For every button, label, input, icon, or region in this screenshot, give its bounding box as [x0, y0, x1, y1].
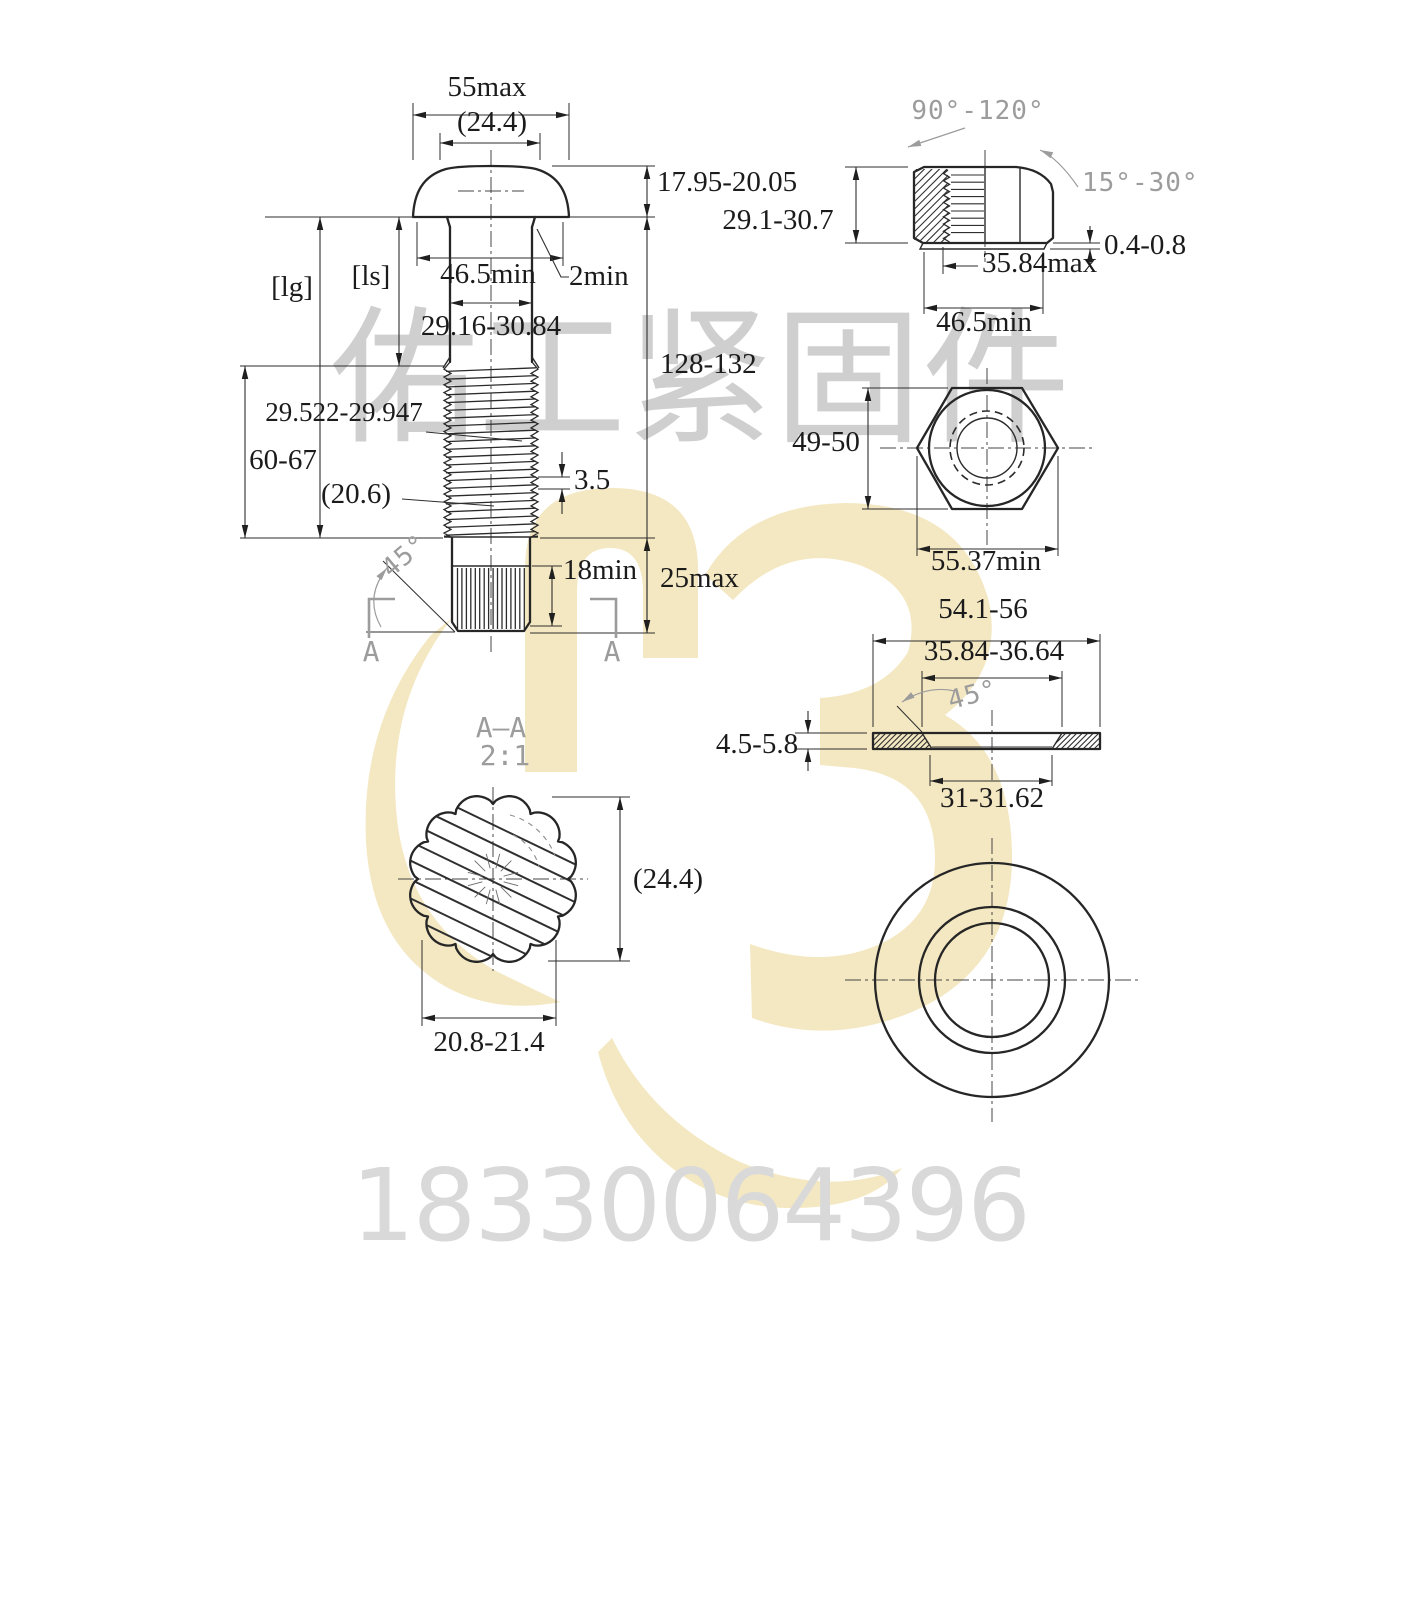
- dim-pitch-dia: 29.522-29.947: [265, 397, 423, 427]
- dim-point-length: 25max: [660, 562, 739, 594]
- logo-arch-shape: [525, 488, 698, 772]
- dim-55max: 55max: [448, 71, 527, 103]
- drawing-sheet: 佑工紧固件 18330064396: [0, 0, 1416, 1600]
- leader-chamfer-45: [374, 568, 387, 627]
- section-scale: 2:1: [480, 739, 531, 772]
- washer-cone-right: [1052, 733, 1062, 749]
- chamfer-angle-label: 45°: [376, 529, 434, 584]
- dim-washer-top-dia: 35.84-36.64: [924, 635, 1065, 667]
- nut-outline: [914, 167, 1053, 243]
- phone-watermark: 18330064396: [351, 1147, 1029, 1264]
- nut-face-angle: 15°-30°: [1082, 168, 1199, 198]
- leader-15-30: [1040, 150, 1078, 187]
- dim-washer-thickness: 4.5-5.8: [716, 728, 798, 760]
- dim-spline-length: 18min: [563, 554, 638, 586]
- dim-nut-bearing-dia: 46.5min: [936, 306, 1032, 338]
- dim-washer-hole: 31-31.62: [940, 782, 1044, 814]
- dim-across-flats: 49-50: [792, 426, 860, 458]
- dim-head-height: 17.95-20.05: [657, 166, 797, 198]
- spline-section-view: A—A 2:1 (24.4) 20.8-21.4: [211, 711, 704, 1058]
- dim-overall-length: 128-132: [660, 348, 757, 380]
- logo-blob-shape: [705, 503, 1012, 1031]
- section-letter-right: A: [604, 635, 621, 668]
- dim-nut-height: 29.1-30.7: [722, 204, 833, 236]
- dim-thread-pitch: 3.5: [574, 464, 610, 496]
- dim-fillet-min: 2min: [569, 260, 629, 292]
- dim-ls: [ls]: [352, 260, 391, 292]
- section-marker-right: [590, 599, 616, 638]
- dim-across-corners: 55.37min: [931, 545, 1042, 577]
- dim-minor-dia: (20.6): [321, 478, 391, 510]
- leader-2min: [537, 229, 569, 277]
- dim-spline-minor: 20.8-21.4: [433, 1026, 545, 1058]
- section-letter-left: A: [363, 635, 380, 668]
- dim-lg: [lg]: [271, 271, 313, 303]
- cad-drawing: 佑工紧固件 18330064396: [0, 0, 1416, 1600]
- leader-90-120: [908, 128, 965, 147]
- dim-shank-dia: 29.16-30.84: [421, 310, 562, 342]
- nut-top-chamfer-angle: 90°-120°: [911, 96, 1044, 126]
- nut-section-hatch: [838, 164, 1035, 248]
- dim-washer-od: 54.1-56: [938, 593, 1027, 625]
- nut-thread-lines: [951, 175, 984, 233]
- dim-face-height: 0.4-0.8: [1104, 229, 1186, 261]
- dim-bearing-dia: 46.5min: [440, 258, 536, 290]
- dim-thread-length: 60-67: [249, 444, 317, 476]
- dim-spline-major: (24.4): [633, 863, 703, 895]
- dim-head-top-dia: (24.4): [457, 106, 527, 138]
- dim-nut-thread-dia: 35.84max: [982, 247, 1098, 279]
- nut-thread-profile: [944, 170, 950, 242]
